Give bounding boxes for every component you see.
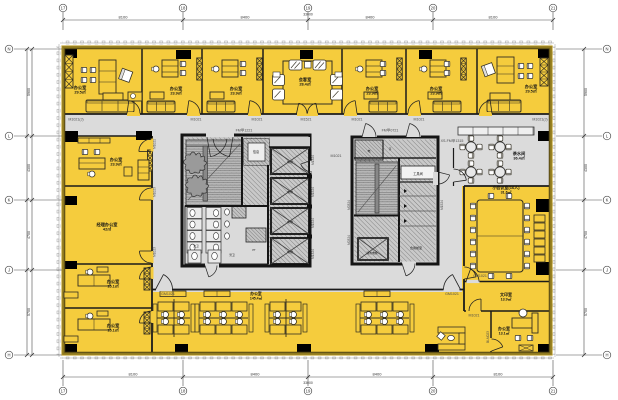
svg-text:20: 20 xyxy=(431,389,436,394)
svg-text:XS-FM甲1315: XS-FM甲1315 xyxy=(441,138,464,143)
svg-text:M1021: M1021 xyxy=(414,118,425,122)
svg-text:8400: 8400 xyxy=(366,15,376,20)
svg-text:办公室: 办公室 xyxy=(250,291,262,296)
svg-text:23.9㎡: 23.9㎡ xyxy=(170,91,182,96)
svg-text:工具间: 工具间 xyxy=(413,171,423,176)
svg-text:J: J xyxy=(8,268,10,273)
svg-text:8100: 8100 xyxy=(489,15,499,20)
svg-text:23.9㎡: 23.9㎡ xyxy=(366,91,378,96)
svg-text:15.1㎡: 15.1㎡ xyxy=(107,284,119,289)
svg-text:N: N xyxy=(605,47,608,52)
svg-text:办公室: 办公室 xyxy=(498,325,510,331)
svg-text:8100: 8100 xyxy=(494,372,504,377)
svg-text:K: K xyxy=(8,198,11,203)
svg-text:145.4㎡: 145.4㎡ xyxy=(250,296,263,301)
svg-text:4700: 4700 xyxy=(27,231,31,239)
svg-text:5900: 5900 xyxy=(584,88,588,96)
svg-text:H: H xyxy=(7,353,10,358)
svg-text:21: 21 xyxy=(551,389,556,394)
svg-text:BLM023: BLM023 xyxy=(486,331,490,343)
svg-text:33000: 33000 xyxy=(303,13,313,17)
svg-text:5900: 5900 xyxy=(27,88,31,96)
svg-text:M1324: M1324 xyxy=(311,155,315,165)
svg-text:19: 19 xyxy=(306,6,311,11)
svg-text:M1021: M1021 xyxy=(352,118,363,122)
svg-text:M1521: M1521 xyxy=(301,118,312,122)
svg-text:15.1㎡: 15.1㎡ xyxy=(107,328,119,333)
svg-text:消防电梯: 消防电梯 xyxy=(366,251,377,255)
svg-text:20: 20 xyxy=(431,6,436,11)
svg-text:电梯: 电梯 xyxy=(287,249,293,254)
svg-text:23.9㎡: 23.9㎡ xyxy=(430,91,442,96)
svg-text:28.4㎡: 28.4㎡ xyxy=(299,82,311,87)
svg-text:M1524: M1524 xyxy=(311,187,315,197)
svg-text:17: 17 xyxy=(61,6,66,11)
svg-text:19: 19 xyxy=(306,389,311,394)
svg-text:男卫: 男卫 xyxy=(229,253,235,257)
svg-text:GM1021: GM1021 xyxy=(161,292,175,296)
svg-text:文印室: 文印室 xyxy=(500,291,512,297)
svg-text:GM1021: GM1021 xyxy=(445,292,459,296)
svg-text:M1021: M1021 xyxy=(252,118,263,122)
svg-text:29.5㎡: 29.5㎡ xyxy=(525,89,537,94)
svg-text:M1324: M1324 xyxy=(311,249,315,259)
svg-text:M1021(J): M1021(J) xyxy=(532,118,547,122)
svg-text:8400: 8400 xyxy=(251,372,261,377)
svg-text:电梯: 电梯 xyxy=(287,219,293,224)
svg-text:女卫: 女卫 xyxy=(193,244,199,248)
svg-text:M1524: M1524 xyxy=(440,200,444,210)
svg-text:23.9㎡: 23.9㎡ xyxy=(110,162,122,167)
svg-text:33000: 33000 xyxy=(303,381,313,385)
svg-text:M1021: M1021 xyxy=(331,154,342,158)
svg-text:PT: PT xyxy=(252,248,256,252)
svg-text:K: K xyxy=(606,198,609,203)
svg-text:M1021: M1021 xyxy=(191,118,202,122)
svg-text:8100: 8100 xyxy=(119,15,129,20)
svg-text:17: 17 xyxy=(61,389,66,394)
svg-text:21: 21 xyxy=(551,6,556,11)
svg-text:18: 18 xyxy=(181,6,186,11)
svg-text:M1023: M1023 xyxy=(153,247,157,257)
svg-text:GM1021: GM1021 xyxy=(473,274,487,278)
svg-text:M1021(J): M1021(J) xyxy=(68,118,83,122)
svg-text:42㎡: 42㎡ xyxy=(103,227,111,232)
svg-text:4300: 4300 xyxy=(27,164,31,172)
svg-text:4300: 4300 xyxy=(584,164,588,172)
svg-text:36.4㎡: 36.4㎡ xyxy=(513,156,525,161)
svg-text:5700: 5700 xyxy=(584,308,588,316)
svg-text:8400: 8400 xyxy=(241,15,251,20)
svg-text:13.1㎡: 13.1㎡ xyxy=(499,331,510,336)
svg-text:小会议室(16人): 小会议室(16人) xyxy=(492,184,520,190)
svg-text:8100: 8100 xyxy=(129,372,139,377)
svg-text:29.5㎡: 29.5㎡ xyxy=(74,90,86,95)
svg-text:M1023: M1023 xyxy=(153,187,157,197)
svg-text:合用前室: 合用前室 xyxy=(410,245,422,250)
svg-text:FM甲1221: FM甲1221 xyxy=(236,128,253,133)
svg-text:8400: 8400 xyxy=(373,372,383,377)
svg-text:N: N xyxy=(7,47,10,52)
svg-text:M1021: M1021 xyxy=(153,139,157,149)
svg-text:茶: 茶 xyxy=(389,147,392,151)
svg-text:23.9㎡: 23.9㎡ xyxy=(230,91,242,96)
svg-text:电梯: 电梯 xyxy=(287,159,293,164)
svg-text:FM甲0721: FM甲0721 xyxy=(382,128,399,133)
svg-text:M1524: M1524 xyxy=(311,218,315,228)
svg-text:4700: 4700 xyxy=(584,231,588,239)
svg-text:M0324: M0324 xyxy=(347,200,351,210)
svg-text:电梯: 电梯 xyxy=(287,189,293,194)
svg-text:M0324: M0324 xyxy=(347,235,351,245)
svg-text:5700: 5700 xyxy=(27,308,31,316)
svg-text:J: J xyxy=(606,268,608,273)
svg-text:31.6㎡: 31.6㎡ xyxy=(501,190,512,195)
svg-text:M1021: M1021 xyxy=(469,314,480,318)
svg-text:电: 电 xyxy=(367,148,370,153)
svg-text:信息: 信息 xyxy=(253,149,259,154)
svg-text:13.9㎡: 13.9㎡ xyxy=(501,297,512,302)
svg-text:18: 18 xyxy=(181,389,186,394)
svg-text:H: H xyxy=(605,353,608,358)
